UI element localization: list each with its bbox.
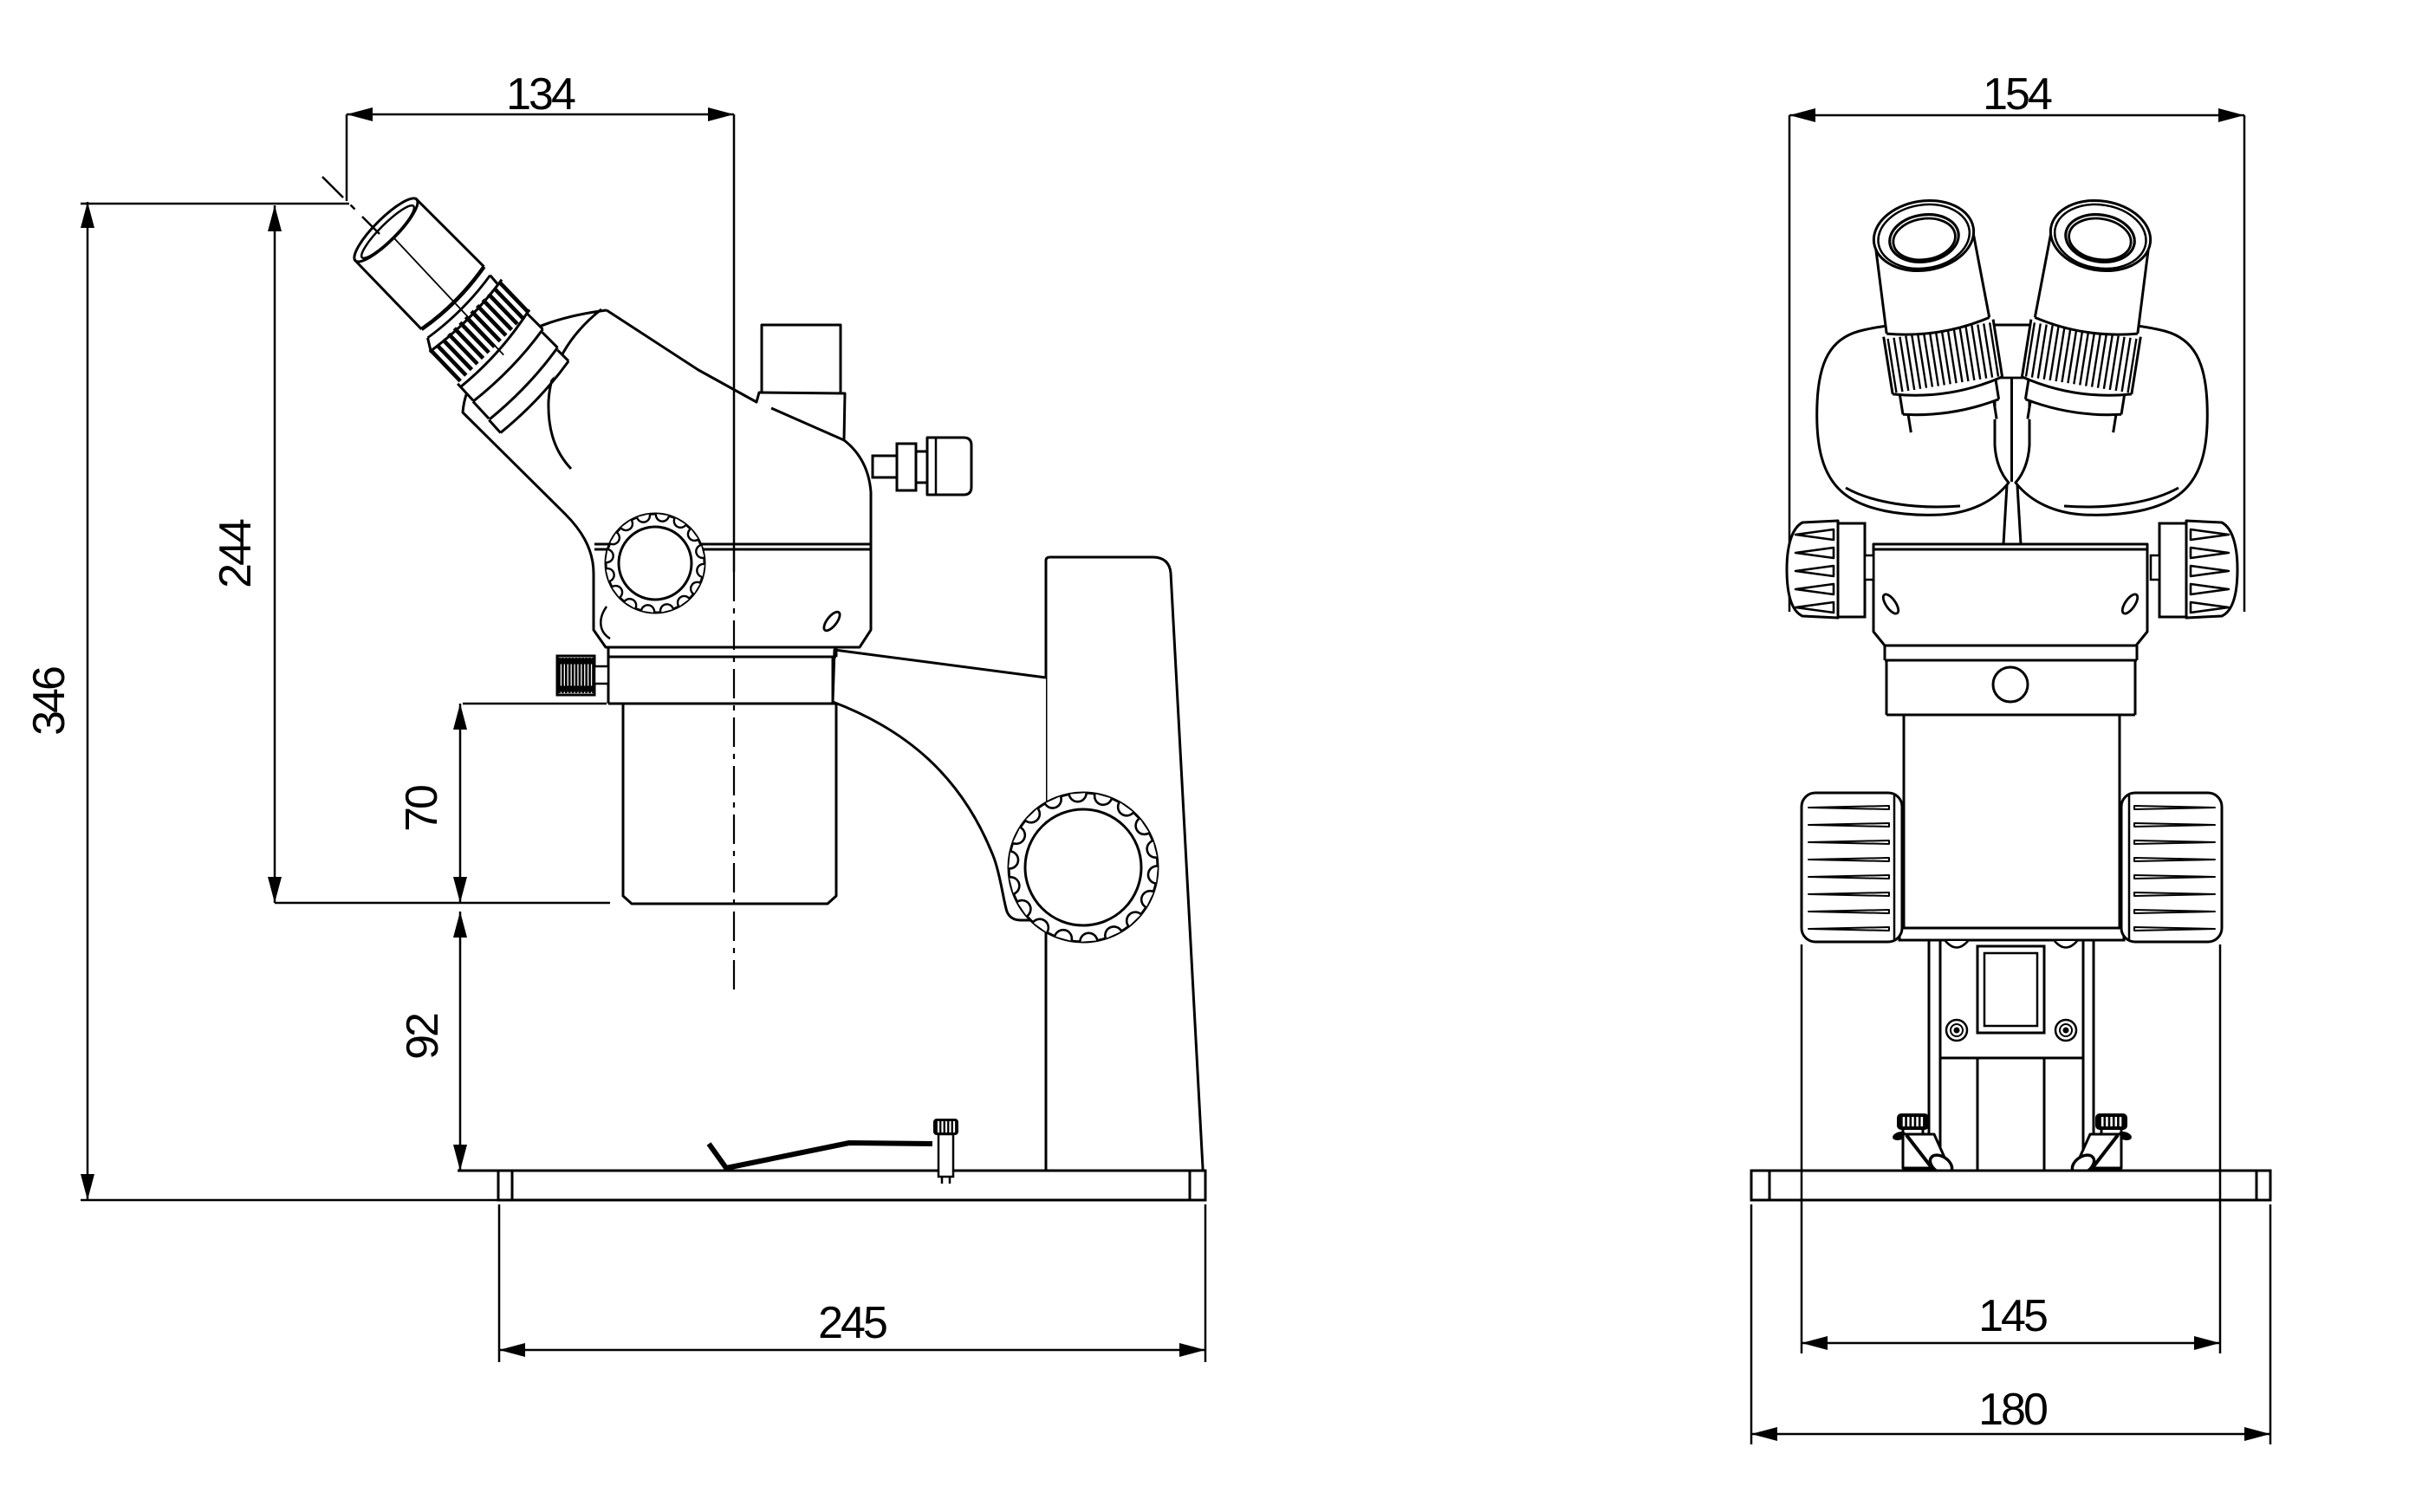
svg-text:70: 70 [397, 786, 447, 832]
svg-text:346: 346 [24, 667, 75, 736]
svg-text:145: 145 [1978, 1291, 2047, 1341]
svg-text:245: 245 [818, 1298, 886, 1348]
svg-text:92: 92 [398, 1014, 448, 1060]
svg-text:154: 154 [1983, 69, 2052, 120]
svg-text:244: 244 [211, 519, 261, 588]
svg-text:134: 134 [506, 69, 575, 120]
svg-text:180: 180 [1978, 1385, 2047, 1435]
